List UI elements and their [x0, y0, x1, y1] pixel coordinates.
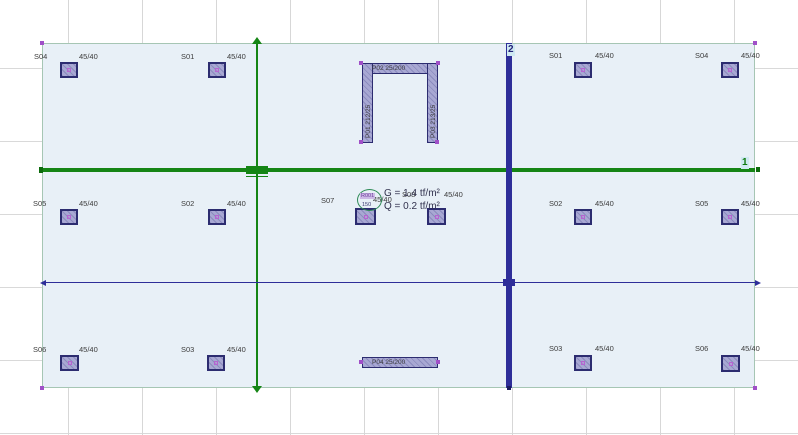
column-name-label: S06	[33, 346, 46, 354]
load-region-id: R001	[360, 193, 375, 199]
dead-load-text: G = 1.4 tf/m²	[384, 188, 440, 200]
column-center-handle	[581, 215, 585, 219]
column-center-handle	[728, 215, 732, 219]
wall-p02-label: P02 25/200	[372, 65, 405, 72]
axis-1-left-cap	[39, 167, 43, 173]
column-size-label: 45/40	[227, 346, 246, 354]
column-center-handle	[67, 215, 71, 219]
column-center-handle	[581, 361, 585, 365]
column[interactable]	[721, 355, 740, 372]
axis-vertical-green-line[interactable]	[256, 43, 258, 388]
slab-corner-handle[interactable]	[753, 41, 757, 45]
column-size-label: 45/40	[79, 53, 98, 61]
column-size-label: 45/40	[227, 200, 246, 208]
column[interactable]	[574, 209, 592, 225]
wall-p04-label: P04 25/200	[372, 359, 405, 366]
slab-corner-handle[interactable]	[40, 386, 44, 390]
column[interactable]	[574, 62, 592, 78]
wall-handle[interactable]	[359, 140, 363, 144]
live-load-text: Q = 0.2 tf/m²	[384, 201, 440, 213]
column[interactable]	[60, 209, 78, 225]
column-name-label: S03	[549, 345, 562, 353]
arrow-down-icon	[252, 386, 262, 393]
column-size-label: 45/40	[741, 200, 760, 208]
slab-corner-handle[interactable]	[753, 386, 757, 390]
column-center-handle	[729, 362, 733, 366]
column-size-label: 45/40	[595, 345, 614, 353]
column-name-label: S04	[695, 52, 708, 60]
wall-handle[interactable]	[436, 360, 440, 364]
axis-2-line[interactable]	[506, 43, 512, 388]
column-center-handle	[68, 361, 72, 365]
column-size-label: 45/40	[595, 52, 614, 60]
arrow-up-icon	[252, 37, 262, 44]
column-name-label: S07	[321, 197, 334, 205]
column-size-label: 45/40	[595, 200, 614, 208]
column[interactable]	[60, 62, 78, 78]
column-size-label: 45/40	[741, 345, 760, 353]
column-center-handle	[215, 68, 219, 72]
load-region-value: 150	[362, 202, 371, 208]
axis-1-right-cap	[756, 167, 760, 172]
column-name-label: S03	[181, 346, 194, 354]
axis-1-line[interactable]	[42, 168, 755, 172]
axis-2-label: 2	[507, 44, 515, 56]
wall-handle[interactable]	[436, 61, 440, 65]
column-name-label: S02	[181, 200, 194, 208]
wall-handle[interactable]	[435, 140, 439, 144]
column-name-label: S05	[33, 200, 46, 208]
column-center-handle	[67, 68, 71, 72]
column[interactable]	[60, 355, 79, 371]
cad-canvas[interactable]: 1 2 P02 25/200 P01 212/25 P03 213/25 P04…	[0, 0, 798, 435]
column-center-handle	[214, 361, 218, 365]
column[interactable]	[721, 209, 739, 225]
column-size-label: 45/40	[444, 191, 463, 199]
wall-handle[interactable]	[359, 360, 363, 364]
axis-intersection-marker	[246, 166, 268, 174]
column[interactable]	[574, 355, 592, 371]
column-center-handle	[364, 215, 368, 219]
slab-region[interactable]	[42, 43, 755, 388]
column-size-label: 45/40	[79, 200, 98, 208]
axis-1-label: 1	[741, 157, 749, 169]
column-center-handle	[728, 68, 732, 72]
column-size-label: 45/40	[227, 53, 246, 61]
wall-handle[interactable]	[359, 61, 363, 65]
column-name-label: S02	[549, 200, 562, 208]
slab-corner-handle[interactable]	[40, 41, 44, 45]
arrow-left-icon	[40, 280, 46, 286]
column[interactable]	[721, 62, 739, 78]
axis-2-end-dot	[507, 386, 511, 390]
column[interactable]	[208, 62, 226, 78]
wall-p03-label: P03 213/25	[430, 105, 437, 138]
column-name-label: S05	[695, 200, 708, 208]
arrow-right-icon	[755, 280, 761, 286]
column-name-label: S01	[549, 52, 562, 60]
axis-intersection-tick	[246, 176, 268, 177]
beam-axis-crossing-marker	[503, 279, 515, 286]
column-name-label: S04	[34, 53, 47, 61]
column-center-handle	[215, 215, 219, 219]
wall-p01-label: P01 212/25	[365, 105, 372, 138]
column-size-label: 45/40	[79, 346, 98, 354]
column-size-label: 45/40	[741, 52, 760, 60]
column-center-handle	[435, 215, 439, 219]
column[interactable]	[207, 355, 225, 371]
column-center-handle	[581, 68, 585, 72]
beam-axis-line[interactable]	[44, 282, 758, 283]
column-name-label: S06	[695, 345, 708, 353]
column-name-label: S01	[181, 53, 194, 61]
column[interactable]	[208, 209, 226, 225]
